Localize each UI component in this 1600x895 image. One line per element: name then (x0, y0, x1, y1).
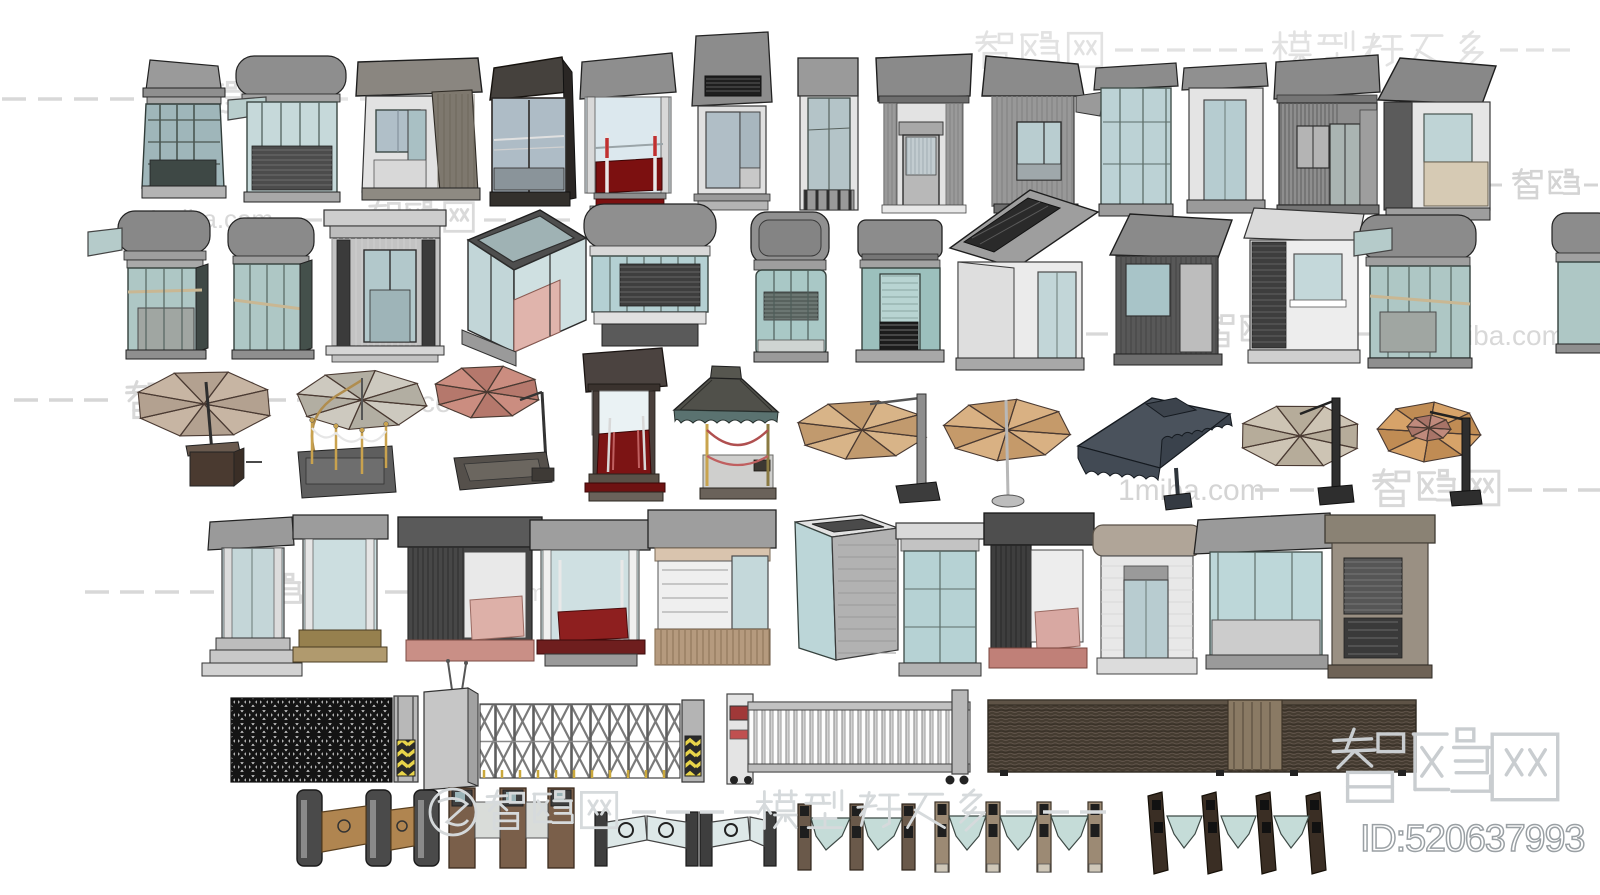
svg-text:ID:520637993: ID:520637993 (1360, 818, 1584, 860)
